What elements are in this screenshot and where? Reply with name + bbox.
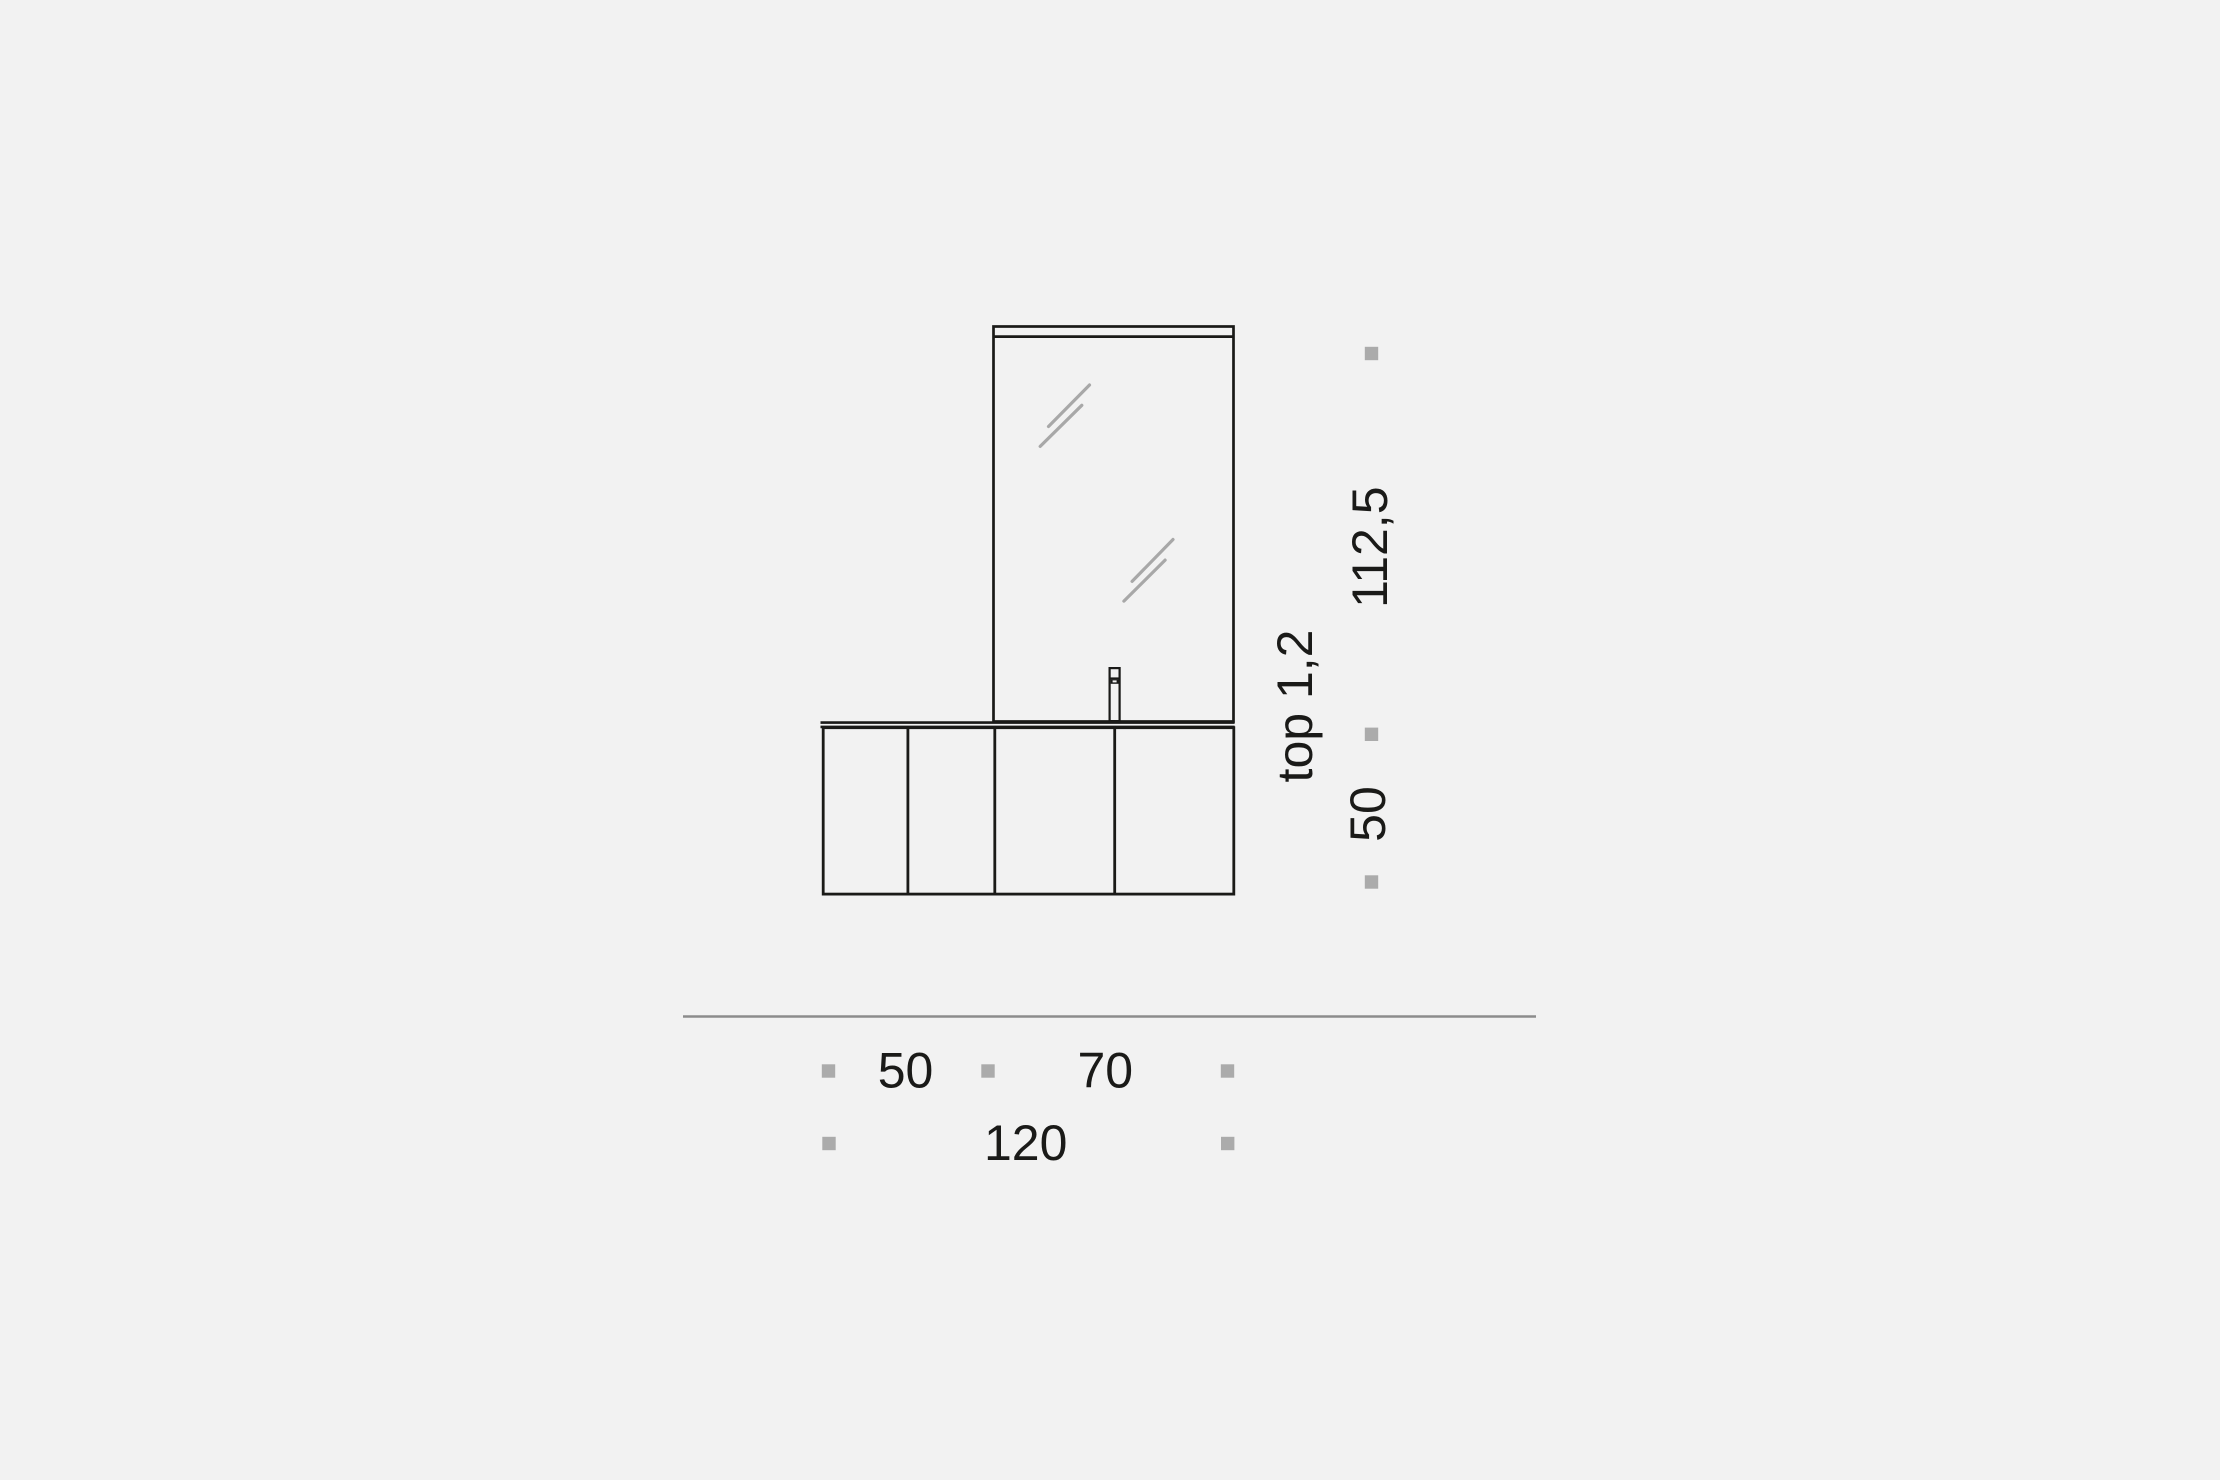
svg-text:120: 120 (984, 1115, 1067, 1171)
svg-text:70: 70 (1077, 1043, 1133, 1099)
svg-text:50: 50 (878, 1043, 934, 1099)
svg-text:112,5: 112,5 (1342, 486, 1398, 607)
svg-text:top 1,2: top 1,2 (1267, 630, 1323, 783)
svg-text:50: 50 (1340, 786, 1396, 842)
